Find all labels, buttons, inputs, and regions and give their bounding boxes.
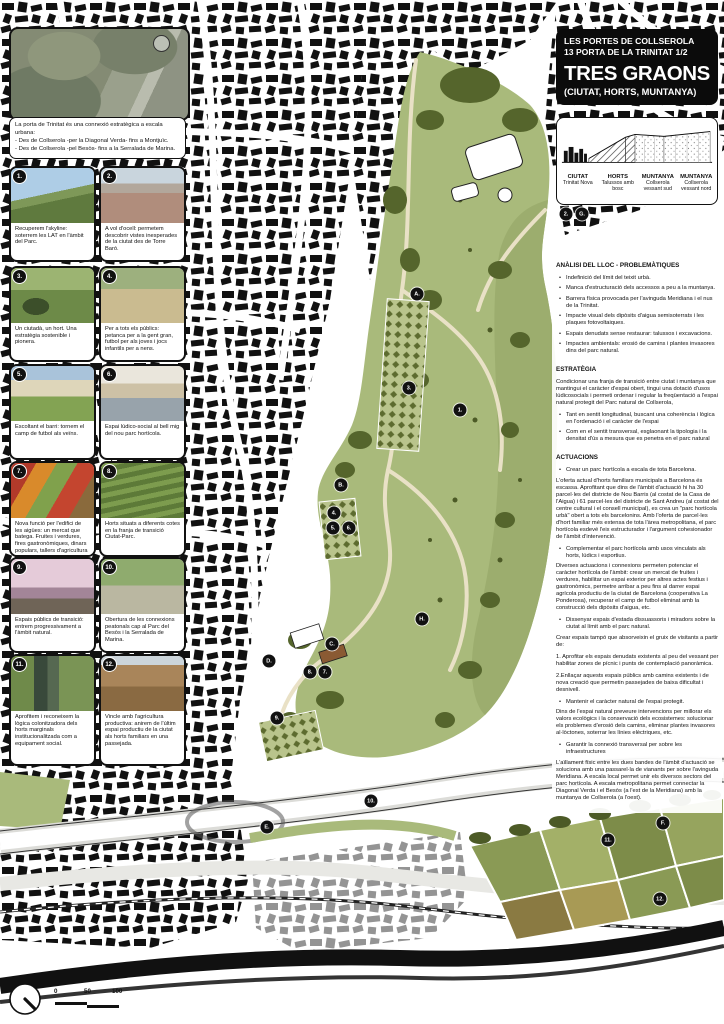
map-marker: 3. [403, 382, 416, 395]
north-arrow-icon [8, 982, 42, 1016]
photo-card: 10. Obertura de les connexions peatonals… [99, 557, 186, 653]
map-marker: 9. [271, 712, 284, 725]
action-paragraph: Diverses actuacions i connexions permete… [556, 563, 719, 612]
map-marker: 1. [454, 404, 467, 417]
action-bullet: •Crear un parc hortícola a escala de tot… [556, 467, 719, 474]
photo-number-badge: 3. [13, 270, 26, 283]
photo-card: 8. Horts situats a diferents cotes en la… [99, 461, 186, 557]
map-marker: 5. [327, 522, 340, 535]
photo-number-badge: 2. [103, 170, 116, 183]
photo-number-badge: 10. [103, 561, 116, 574]
scale-bar-segment [87, 1005, 119, 1008]
legend-sub: Collserola vessant nord [675, 180, 717, 192]
map-marker: A. [411, 288, 424, 301]
photo-caption: Horts situats a diferents cotes en la fr… [101, 518, 184, 543]
context-satellite-map [9, 27, 190, 121]
page-subtitle: (CIUTAT, HORTS, MUNTANYA) [564, 87, 710, 97]
photo-card: 5. Escoltant el barri: tornem el camp de… [9, 364, 96, 460]
scale-label: 100 [112, 988, 122, 995]
intro-line: - Des de Collserola -per la Diagonal Ver… [15, 138, 180, 146]
analysis-heading: ANÀLISI DEL LLOC - PROBLEMÀTIQUES [556, 262, 719, 270]
intro-line: La porta de Trinitat és una connexió est… [15, 122, 180, 138]
location-ring-icon [153, 35, 170, 52]
poster-board: 1. 2. 3. 4. 5. 6. 7. 8. 9. 10. 11. 12. A… [0, 0, 724, 1024]
photo-caption: Un ciutadà, un hort. Una estratègia sost… [11, 323, 94, 348]
photo-caption: Recuperem l'skyline: soterrem les LAT en… [11, 223, 94, 248]
actions-heading: ACTUACIONS [556, 454, 719, 462]
map-marker: F. [657, 817, 670, 830]
map-marker: 2. [560, 208, 573, 221]
scale-bar: 0 50 100 [8, 982, 158, 1020]
legend-column-muntanya-nord: MUNTANYA Collserola vessant nord [675, 174, 717, 192]
photo-card: 7. Nova funció per l'edifici de les aigü… [9, 461, 96, 557]
intro-line: - Des de Collserola -pel Besòs- fins a l… [15, 146, 180, 154]
map-marker: C. [326, 638, 339, 651]
scale-label: 50 [84, 988, 91, 995]
photo-number-badge: 11. [13, 658, 26, 671]
legend-column-horts: HORTS Talussos amb bosc [597, 174, 639, 192]
photo-caption: Aprofitem i reconeixem la lògica colonit… [11, 711, 94, 750]
legend-sub: Trinitat Nova [557, 180, 599, 186]
photo-caption: Obertura de les connexions peatonals cap… [101, 614, 184, 646]
strategy-heading: ESTRATÈGIA [556, 366, 719, 374]
map-marker: 6. [343, 522, 356, 535]
title-block: LES PORTES DE COLLSEROLA 13 PORTA DE LA … [556, 29, 718, 105]
action-paragraph: Crear espais tampó que absorveixin el gr… [556, 635, 719, 649]
photo-caption: Escoltant el barri: tornem el camp de fu… [11, 421, 94, 439]
map-marker: 12. [654, 893, 667, 906]
strategy-bullet: •Tant en sentit longitudinal, buscant un… [556, 412, 719, 426]
map-marker: G. [576, 208, 589, 221]
photo-number-badge: 8. [103, 465, 116, 478]
photo-caption: Espai lúdico-social al bell mig del nou … [101, 421, 184, 439]
map-marker: 4. [328, 507, 341, 520]
action-bullet: •Garantir la connexió transversal per so… [556, 742, 719, 756]
photo-card: 9. Espais públics de transició: entrem p… [9, 557, 96, 653]
photo-number-badge: 4. [103, 270, 116, 283]
photo-card: 1. Recuperem l'skyline: soterrem les LAT… [9, 166, 96, 262]
photo-number-badge: 9. [13, 561, 26, 574]
action-paragraph: 1. Aprofitar els espais denudats existen… [556, 654, 719, 668]
photo-number-badge: 12. [103, 658, 116, 671]
photo-card: 11. Aprofitem i reconeixem la lògica col… [9, 654, 96, 766]
panel-number: 13 PORTA DE LA TRINITAT 1/2 [564, 47, 710, 58]
photo-caption: Espais públics de transició: entrem prog… [11, 614, 94, 639]
map-marker: B. [335, 479, 348, 492]
analysis-bullet: •Impactes ambientals: erosió de camins i… [556, 341, 719, 355]
action-paragraph: L'aïllament físic entre les dues bandes … [556, 760, 719, 802]
analysis-bullet: •Espais denudats sense restaurar: taluss… [556, 331, 719, 338]
action-paragraph: 2.Enllaçar aquests espais públics amb ca… [556, 673, 719, 694]
map-marker: 10. [365, 795, 378, 808]
map-marker: 7. [319, 666, 332, 679]
action-bullet: •Dissenyar espais d'estada dissuassoris … [556, 617, 719, 631]
action-bullet: •Complementar el parc hortícola amb usos… [556, 546, 719, 560]
photo-number-badge: 7. [13, 465, 26, 478]
map-marker: 8. [304, 666, 317, 679]
legend-column-muntanya-sud: MUNTANYA Collserola vessant sud [637, 174, 679, 192]
map-marker: H. [416, 613, 429, 626]
photo-caption: Per a tots els públics: petanca per a la… [101, 323, 184, 355]
analysis-bullet: •Impacte visual dels dipòsits d'aigua se… [556, 313, 719, 327]
map-marker: E. [261, 821, 274, 834]
legend-column-ciutat: CIUTAT Trinitat Nova [557, 174, 599, 186]
analysis-bullet: •Manca d'estructuració dels accessos a p… [556, 285, 719, 292]
terrain-section-drawing [560, 122, 714, 170]
photo-card: 2. A vol d'ocell: permetem descobrir vis… [99, 166, 186, 262]
photo-number-badge: 1. [13, 170, 26, 183]
photo-caption: A vol d'ocell: permetem descobrir vistes… [101, 223, 184, 255]
scale-bar-segment [55, 1002, 87, 1005]
intro-caption: La porta de Trinitat és una connexió est… [9, 117, 186, 159]
legend-sub: Talussos amb bosc [597, 180, 639, 192]
photo-caption: Nova funció per l'edifici de les aigües:… [11, 518, 94, 557]
photo-number-badge: 5. [13, 368, 26, 381]
map-marker: 11. [602, 834, 615, 847]
action-paragraph: Dins de l'espai natural preveure interve… [556, 709, 719, 737]
page-title: TRES GRAONS [564, 62, 710, 86]
strategy-intro: Condicionar una franja de transició entr… [556, 379, 719, 407]
legend-sub: Collserola vessant sud [637, 180, 679, 192]
photo-card: 3. Un ciutadà, un hort. Una estratègia s… [9, 266, 96, 362]
action-paragraph: L'oferta actual d'horts familiars munici… [556, 478, 719, 541]
analysis-bullet: •Barrera física provocada per l'avinguda… [556, 296, 719, 310]
project-series-title: LES PORTES DE COLLSEROLA [564, 36, 710, 47]
analysis-text-panel: ANÀLISI DEL LLOC - PROBLEMÀTIQUES •Indef… [552, 258, 722, 813]
photo-caption: Vincle amb l'agricultura productiva: ani… [101, 711, 184, 750]
strategy-bullet: •Com en el sentit transversal, esglaonan… [556, 429, 719, 443]
section-diagram: CIUTAT Trinitat Nova HORTS Talussos amb … [556, 117, 718, 205]
photo-card: 12. Vincle amb l'agricultura productiva:… [99, 654, 186, 766]
scale-label: 0 [54, 988, 57, 995]
photo-card: 6. Espai lúdico-social al bell mig del n… [99, 364, 186, 460]
map-marker: D. [263, 655, 276, 668]
action-bullet: •Mantenir el caràcter natural de l'espai… [556, 699, 719, 706]
photo-card: 4. Per a tots els públics: petanca per a… [99, 266, 186, 362]
analysis-bullet: •Indefinició del límit del teixit urbà. [556, 275, 719, 282]
photo-number-badge: 6. [103, 368, 116, 381]
